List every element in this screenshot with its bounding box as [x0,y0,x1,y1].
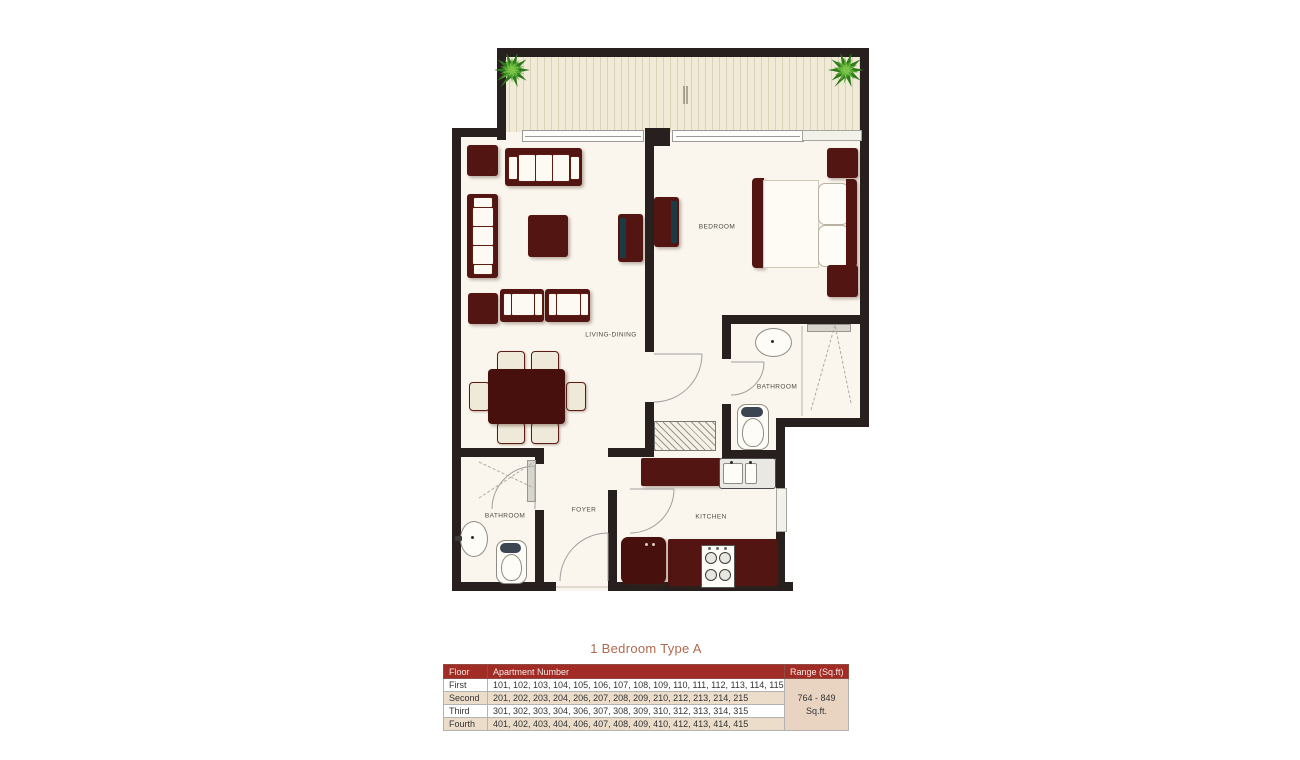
wall-bath1-bottom [776,418,869,427]
range-value: 764 - 849 [785,692,848,705]
armchair [500,289,544,322]
sink [460,521,488,557]
wall-left-upper [452,128,461,456]
closet [654,421,716,451]
floor-cell: Second [444,692,488,705]
shower-fixture-bar [807,324,851,332]
bathroom-guest-label: BATHROOM [485,513,525,520]
wall-bath2-right-b [535,510,544,591]
bathroom-main-label: BATHROOM [757,384,797,391]
header-apartment-number: Apartment Number [488,665,785,679]
wall-divider-a [645,128,654,352]
range-unit: Sq.ft. [785,705,848,718]
refrigerator [621,537,666,584]
bedroom-label: BEDROOM [699,224,735,231]
wall-balcony-top [497,48,869,57]
bed-pillow [818,225,849,267]
wall-bath2-right-a [535,448,544,464]
wall-balcony-left [497,48,506,140]
header-floor: Floor [444,665,488,679]
shower-panel [527,460,536,502]
stove [701,545,735,588]
plan-title: 1 Bedroom Type A [443,641,849,656]
wall-divider-b [645,402,654,457]
side-table [468,293,498,324]
sink [755,328,792,357]
wall-right [860,48,869,426]
apartments-cell: 101, 102, 103, 104, 105, 106, 107, 108, … [488,679,785,692]
wall-bath1-left-a [722,315,731,359]
table-row: First 101, 102, 103, 104, 105, 106, 107,… [444,679,849,692]
floor-cell: First [444,679,488,692]
wall-left-lower [452,448,461,591]
kitchen-label: KITCHEN [695,514,726,521]
nightstand [827,148,858,178]
bedroom-window [802,130,862,141]
dining-chair [566,382,586,411]
nightstand [827,265,858,297]
tv-unit-living [618,214,643,262]
header-range: Range (Sq.ft) [785,665,849,679]
floor-cell: Third [444,705,488,718]
kitchen-counter-top [641,458,721,486]
floorplan: LIVING-DINING BEDROOM BATHROOM KITCHEN F… [450,42,870,592]
tv-unit-bedroom [654,197,679,247]
side-table [467,145,498,176]
balcony-sliding-door-left [522,130,644,142]
wall-bath2-top [452,448,543,457]
living-dining-label: LIVING-DINING [585,332,636,339]
bed-mattress [763,180,819,268]
floor-cell: Fourth [444,718,488,731]
apartment-table: Floor Apartment Number Range (Sq.ft) Fir… [443,664,849,731]
page: { "title": "1 Bedroom Type A", "plan": {… [0,0,1300,760]
dining-chair [469,382,490,411]
kitchen-window [776,488,787,532]
wall-bedroom-bathroom [722,315,869,324]
apartments-cell: 201, 202, 203, 204, 206, 207, 208, 209, … [488,692,785,705]
wall-foyer-right-b [608,490,617,591]
apartments-cell: 401, 402, 403, 404, 406, 407, 408, 409, … [488,718,785,731]
dining-chair [497,422,525,444]
table-header-row: Floor Apartment Number Range (Sq.ft) [444,665,849,679]
balcony-floor [502,53,864,138]
info-section: 1 Bedroom Type A Floor Apartment Number … [443,641,849,731]
toilet [496,540,527,584]
kitchen-sink [719,458,776,489]
coffee-table [528,215,568,257]
range-cell: 764 - 849 Sq.ft. [785,679,849,731]
balcony-sliding-door-right [672,130,804,142]
foyer-label: FOYER [572,507,596,514]
wall-balcony-pier [645,128,670,146]
bed-headboard [846,179,857,267]
apartments-cell: 301, 302, 303, 304, 306, 307, 308, 309, … [488,705,785,718]
armchair [545,289,590,322]
sofa-side [467,194,498,278]
dining-chair [531,422,559,444]
sofa-three-seat [505,148,582,186]
bed-pillow [818,183,849,225]
toilet [737,404,769,450]
dining-table [488,369,565,424]
